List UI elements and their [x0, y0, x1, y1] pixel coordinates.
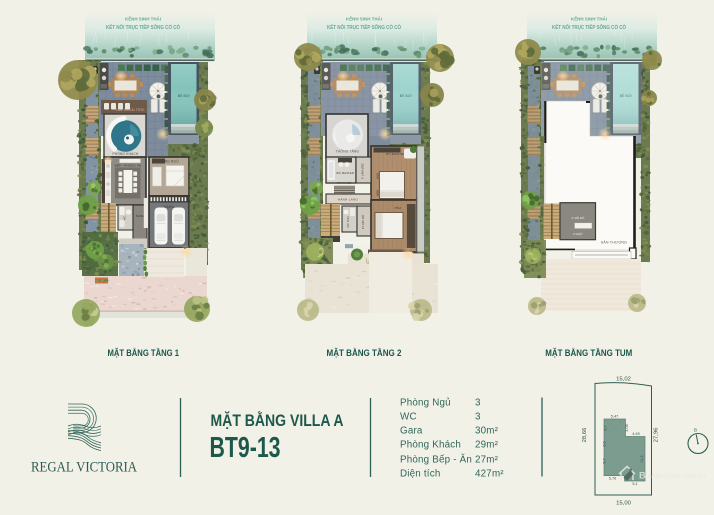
svg-text:P.THAY ĐỒ: P.THAY ĐỒ [337, 180, 352, 185]
svg-text:Phòng Bếp - Ăn: Phòng Bếp - Ăn [400, 455, 472, 466]
svg-text:15,02: 15,02 [616, 377, 631, 383]
svg-text:KẾT NỐI TRỤC TIẾP SÔNG CỔ CÒ: KẾT NỐI TRỤC TIẾP SÔNG CỔ CÒ [106, 23, 180, 31]
svg-text:REGAL VICTORIA: REGAL VICTORIA [31, 460, 138, 476]
svg-text:SÂN THƯỢNG: SÂN THƯỢNG [601, 240, 627, 244]
svg-text:P. ĐỂ ĐỒ: P. ĐỂ ĐỒ [572, 215, 585, 220]
svg-text:BỂ BƠI: BỂ BƠI [178, 93, 190, 98]
svg-text:5,1: 5,1 [632, 482, 637, 486]
svg-text:B: B [694, 428, 697, 433]
svg-text:11,3: 11,3 [640, 455, 644, 462]
svg-text:P.GIẶT: P.GIẶT [573, 232, 583, 236]
svg-text:28,66: 28,66 [582, 427, 588, 442]
svg-text:3: 3 [475, 398, 481, 409]
svg-text:WC PHỤ: WC PHỤ [346, 216, 350, 227]
svg-text:WC: WC [400, 412, 417, 423]
svg-text:3: 3 [475, 412, 481, 423]
svg-text:Diện tích: Diện tích [400, 469, 440, 480]
svg-text:P. LÀM VIỆC: P. LÀM VIỆC [360, 163, 365, 179]
svg-text:Gara: Gara [400, 426, 423, 437]
svg-text:27,96: 27,96 [654, 427, 660, 442]
svg-text:8,7: 8,7 [604, 425, 608, 430]
svg-text:KÊNH SINH THÁI: KÊNH SINH THÁI [125, 15, 161, 22]
svg-text:3,05: 3,05 [625, 424, 629, 431]
svg-text:SẢNH: SẢNH [136, 213, 144, 218]
svg-text:15,00: 15,00 [616, 501, 631, 507]
svg-text:Phòng Khách: Phòng Khách [400, 440, 461, 451]
svg-text:5,47: 5,47 [611, 415, 618, 419]
svg-text:Phòng Ngủ: Phòng Ngủ [400, 398, 451, 409]
svg-text:B: B [639, 471, 646, 482]
svg-text:BT9-13: BT9-13 [210, 432, 281, 464]
svg-text:PHÒNG KHÁCH: PHÒNG KHÁCH [113, 151, 139, 156]
svg-text:THÔNG TẦNG: THÔNG TẦNG [336, 149, 360, 154]
svg-text:WC MASTER: WC MASTER [336, 171, 354, 175]
svg-text:KÊNH SINH THÁI: KÊNH SINH THÁI [346, 15, 382, 22]
svg-text:MẶT BẰNG VILLA A: MẶT BẰNG VILLA A [211, 411, 344, 430]
svg-text:30m²: 30m² [475, 426, 499, 437]
svg-text:KẾT NỐI TRỤC TIẾP SÔNG CỔ CÒ: KẾT NỐI TRỤC TIẾP SÔNG CỔ CÒ [552, 23, 626, 31]
svg-text:4,69: 4,69 [632, 432, 639, 436]
svg-text:ttproperty: ttproperty [345, 241, 370, 247]
svg-text:BẾP - PHÒNG ĂN: BẾP - PHÒNG ĂN [115, 162, 142, 167]
svg-text:29m²: 29m² [475, 440, 499, 451]
svg-text:MẶT BẰNG TẦNG 1: MẶT BẰNG TẦNG 1 [108, 348, 180, 358]
svg-text:PH.MASTER: PH.MASTER [386, 152, 406, 156]
svg-text:MẶT BẰNG TẦNG TUM: MẶT BẰNG TẦNG TUM [545, 348, 632, 358]
svg-text:KẾT NỐI TRỤC TIẾP SÔNG CỔ CÒ: KẾT NỐI TRỤC TIẾP SÔNG CỔ CÒ [327, 23, 401, 31]
svg-text:27m²: 27m² [475, 455, 499, 466]
svg-text:WC: WC [123, 216, 127, 221]
svg-text:HÀNH LANG: HÀNH LANG [338, 198, 359, 202]
svg-text:PN2: PN2 [395, 206, 402, 210]
svg-text:MẶT BẰNG TẦNG 2: MẶT BẰNG TẦNG 2 [327, 348, 402, 358]
svg-text:0,6: 0,6 [603, 441, 607, 446]
svg-text:5,76: 5,76 [609, 476, 616, 480]
svg-text:427m²: 427m² [475, 469, 504, 480]
svg-text:atdongsan.com.vn: atdongsan.com.vn [648, 473, 705, 480]
svg-text:KÊNH SINH THÁI: KÊNH SINH THÁI [571, 15, 607, 22]
svg-text:P.THAY ĐỒ: P.THAY ĐỒ [360, 214, 365, 229]
svg-text:5,7: 5,7 [603, 458, 607, 463]
